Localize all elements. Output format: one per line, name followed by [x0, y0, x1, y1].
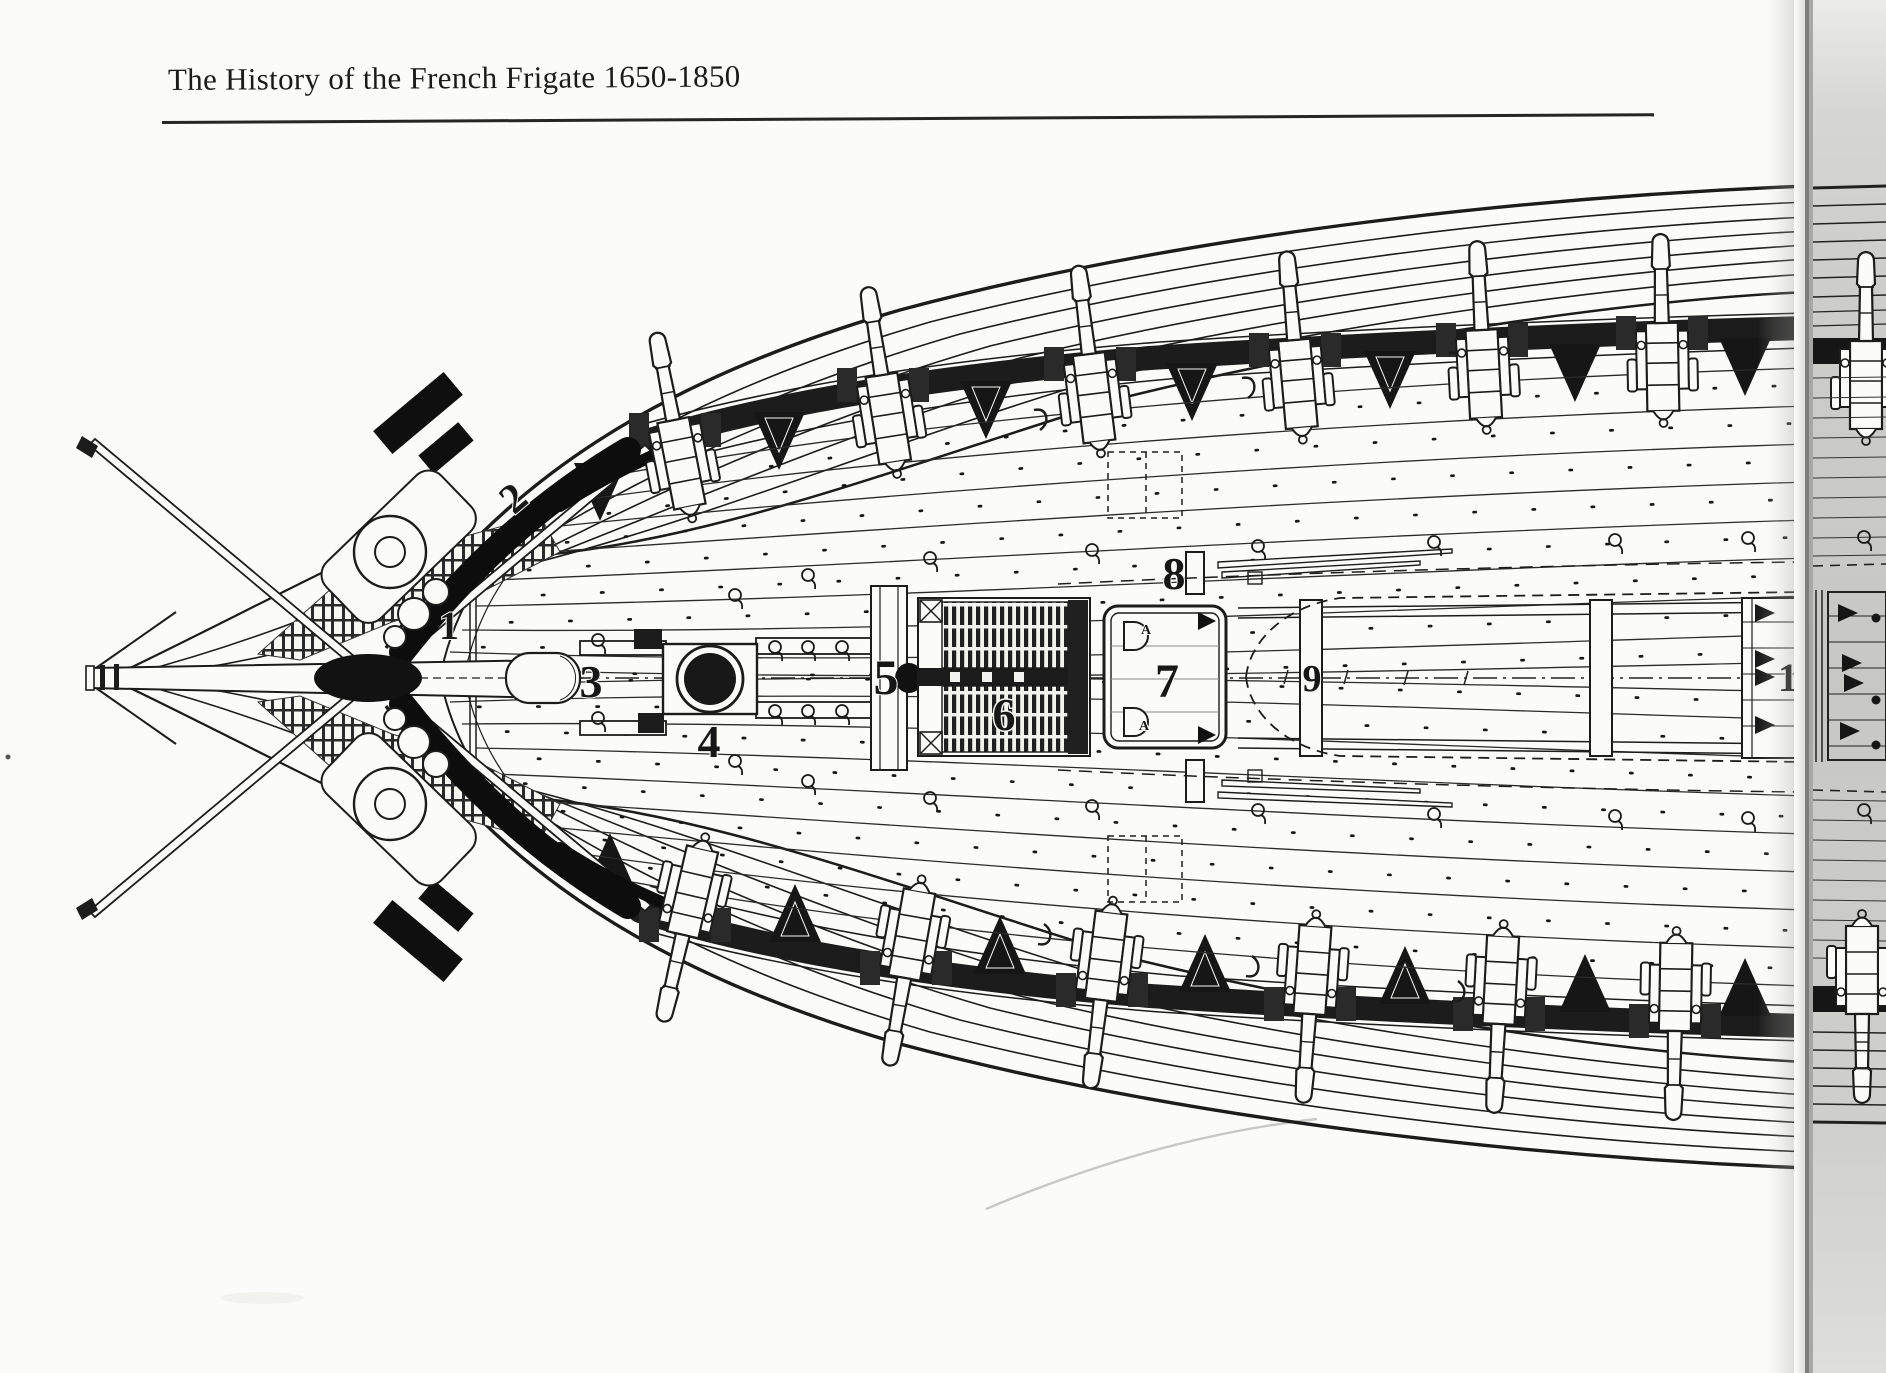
spare-spars-top	[1186, 549, 1452, 594]
page-gutter-edge	[1809, 0, 1813, 1373]
part-label-4: 4	[698, 716, 721, 767]
skid-beam-2	[1590, 600, 1612, 756]
stem-head	[314, 654, 422, 702]
frigate-deck-plan: A A	[0, 0, 1886, 1373]
gun-carriage	[1638, 926, 1711, 1120]
spare-spars-bottom	[1186, 760, 1452, 807]
foremast-hole	[684, 653, 736, 705]
part-label-8: 8	[1163, 548, 1186, 599]
page-gutter-line	[1805, 0, 1809, 1373]
foremast-partners	[580, 629, 874, 735]
gun-carriage	[1625, 233, 1698, 427]
part-label-3: 3	[580, 656, 603, 707]
scan-smudge	[220, 1292, 304, 1304]
hatch-letter-a-bottom: A	[1139, 719, 1150, 734]
gun-battery-bottom	[629, 826, 1712, 1121]
part-label-1: 1	[439, 603, 459, 648]
page-gutter-highlight	[1794, 0, 1806, 1373]
hatch-letter-a-top: A	[1141, 623, 1152, 638]
part-label-9: 9	[1303, 658, 1322, 700]
part-label-7: 7	[1155, 655, 1179, 708]
deck-plan-drawing: A A	[76, 186, 1818, 1168]
book-page: The History of the French Frigate 1650-1…	[0, 0, 1886, 1373]
bowsprit-heel	[506, 653, 580, 703]
part-label-5: 5	[874, 649, 899, 705]
scan-dot	[6, 755, 11, 760]
part-label-6: 6	[993, 689, 1016, 740]
facing-page-sliver	[1813, 0, 1886, 1373]
scan-crease	[986, 1119, 1317, 1209]
page-edge-shadow	[1758, 0, 1796, 1373]
